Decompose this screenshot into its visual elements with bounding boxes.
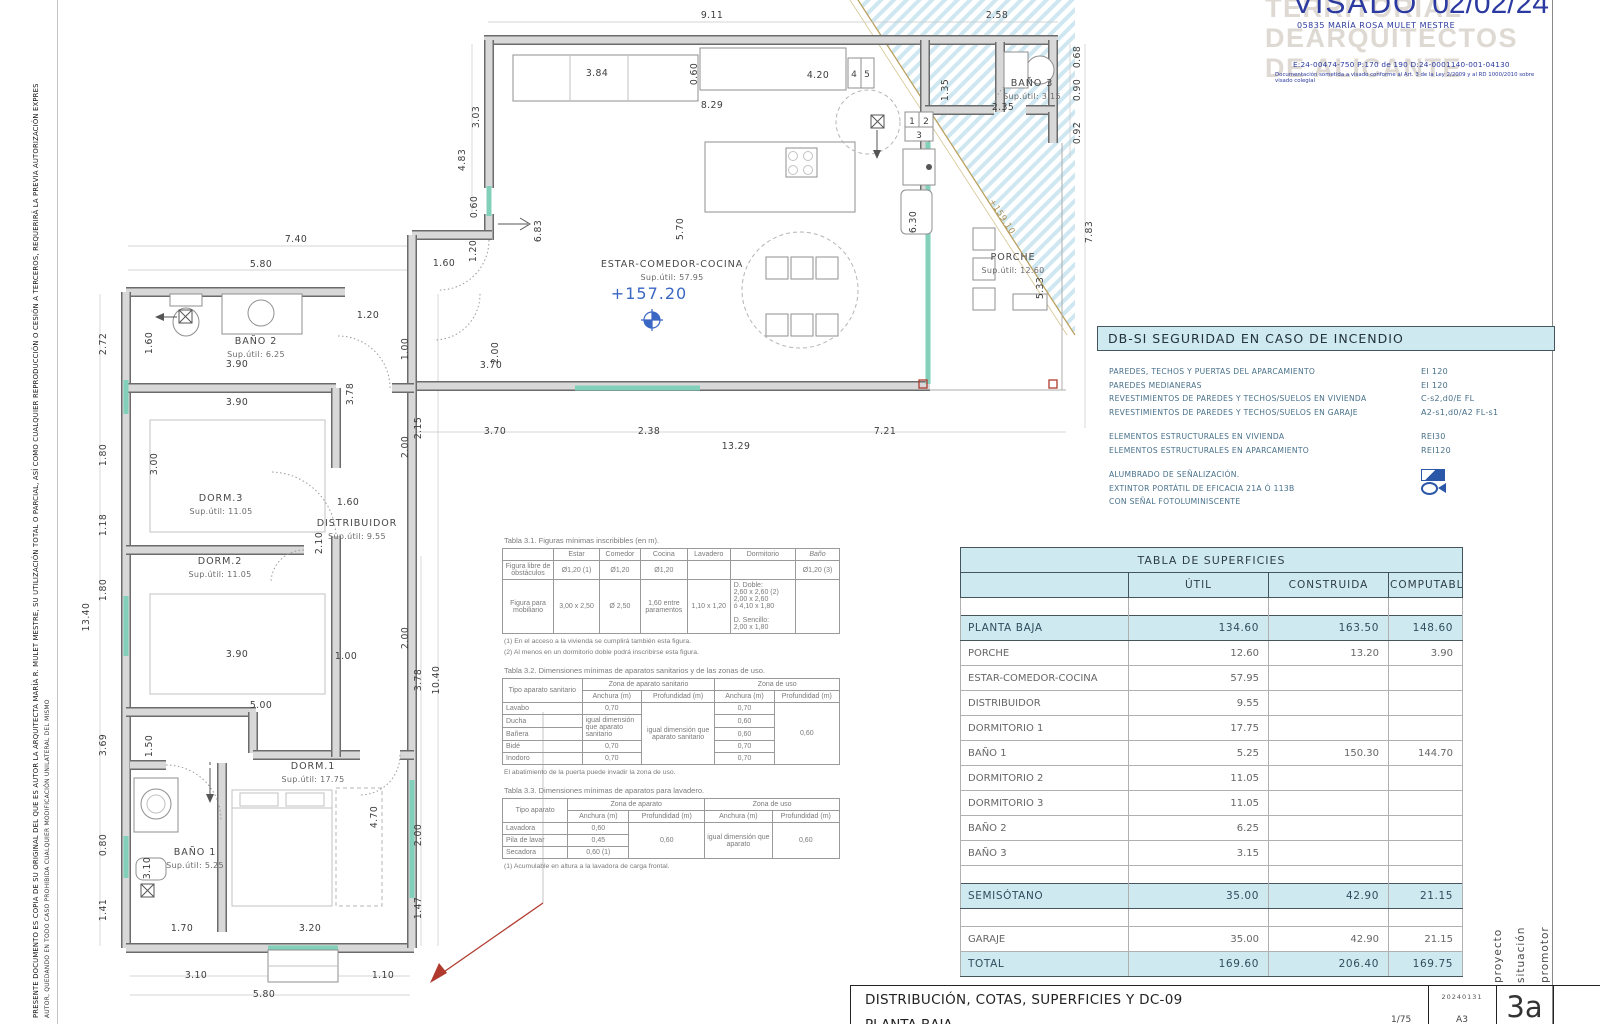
dbsi-row: REVESTIMIENTOS DE PAREDES Y TECHOS/SUELO… [1109, 392, 1555, 406]
dimension-label: 1.60 [144, 332, 155, 354]
dimension-label: 0.68 [1072, 46, 1083, 68]
dimension-label: 1.41 [98, 899, 109, 921]
surfaces-row: DISTRIBUIDOR9.55 [961, 691, 1463, 716]
bed [232, 790, 332, 906]
dbsi-row: ELEMENTOS ESTRUCTURALES EN VIVIENDAREI30 [1109, 430, 1555, 444]
t32-title: Tabla 3.2. Dimensiones mínimas de aparat… [504, 666, 840, 675]
stamp-title: VISADO [1293, 0, 1418, 21]
surfaces-row: DORMITORIO 311.05 [961, 791, 1463, 816]
surfaces-col-computable: COMPUTABLE [1389, 573, 1463, 598]
dimension-label: 1.60 [337, 497, 359, 508]
dbsi-value: C-s2,d0/E FL [1421, 394, 1474, 403]
surfaces-row: PORCHE12.6013.203.90 [961, 641, 1463, 666]
drain-icon [141, 884, 154, 897]
surfaces-row [961, 909, 1463, 927]
surfaces-col-construida: CONSTRUIDA [1269, 573, 1389, 598]
drain-icon [871, 115, 884, 159]
dimension-label: 3.10 [185, 970, 207, 981]
dimension-label: 3.84 [586, 68, 608, 79]
appliance-5: 5 [864, 70, 870, 80]
red-marker [1049, 380, 1057, 388]
surfaces-row: GARAJE35.0042.9021.15 [961, 927, 1463, 952]
entry-arrow-icon [498, 218, 530, 230]
room-area-label: Sup.útil: 17.75 [281, 775, 344, 784]
dimension-label: 5.80 [250, 259, 272, 270]
dimension-label: 0.60 [689, 63, 700, 85]
dbsi-value: EI 120 [1421, 381, 1448, 390]
margin-label-situacion: situación [1515, 903, 1527, 983]
dimension-label: 13.29 [722, 441, 751, 452]
dbsi-row: PAREDES MEDIANERASEI 120 [1109, 379, 1555, 393]
dbsi-label: REVESTIMIENTOS DE PAREDES Y TECHOS/SUELO… [1109, 408, 1421, 417]
dimension-label: 6.83 [533, 220, 544, 242]
dimension-label: 3.90 [226, 397, 248, 408]
stamp-refs: E:24-00474-750 P:170 de 190 D:24-0001140… [1293, 60, 1510, 69]
surfaces-row [961, 866, 1463, 884]
dimension-label: 3.78 [345, 383, 356, 405]
visado-stamp: TERRITORIAL DEARQUITECTOS DE ALICANTE VI… [1265, 0, 1557, 96]
wardrobe [336, 788, 382, 906]
surfaces-table: TABLA DE SUPERFICIES ÚTIL CONSTRUIDA COM… [960, 547, 1463, 977]
surfaces-row: BAÑO 15.25150.30144.70 [961, 741, 1463, 766]
dbsi-label: ALUMBRADO DE SEÑALIZACIÓN. [1109, 470, 1421, 479]
room-label: DORM.2 [198, 556, 242, 567]
appliance-1: 1 [909, 117, 915, 127]
surfaces-row: DORMITORIO 117.75 [961, 716, 1463, 741]
dimension-label: 2.38 [638, 426, 660, 437]
t32: Tipo aparato sanitario Zona de aparato s… [502, 678, 840, 765]
dimension-label: 2.10 [314, 532, 325, 554]
room-label: ESTAR-COMEDOR-COCINA [601, 259, 743, 270]
surfaces-row: SEMISÓTANO35.0042.9021.15 [961, 884, 1463, 909]
surfaces-row: DORMITORIO 211.05 [961, 766, 1463, 791]
dbsi-value: REI120 [1421, 446, 1451, 455]
dimension-label: 1.35 [940, 79, 951, 101]
dimension-label: 2.00 [413, 824, 424, 846]
appliance-3: 3 [916, 131, 922, 141]
t33-note: (1) Acumulable en altura a la lavadora d… [504, 863, 840, 870]
dbsi-label: ELEMENTOS ESTRUCTURALES EN APARCAMIENTO [1109, 446, 1421, 455]
dbsi-row: ALUMBRADO DE SEÑALIZACIÓN. [1109, 468, 1555, 482]
title-block: DISTRIBUCIÓN, COTAS, SUPERFICIES Y DC-09… [850, 985, 1600, 1024]
dimension-label: 1.60 [433, 258, 455, 269]
room-label: DISTRIBUIDOR [317, 518, 398, 529]
sheet-number: 3a [1496, 990, 1553, 1024]
surfaces-col-empty [961, 573, 1129, 598]
dimension-label: 3.20 [299, 923, 321, 934]
dimension-label: 2.58 [986, 10, 1008, 21]
t33: Tipo aparato Zona de aparato Zona de uso… [502, 798, 840, 859]
surfaces-table-title: TABLA DE SUPERFICIES [961, 548, 1463, 573]
dbsi-label: PAREDES MEDIANERAS [1109, 381, 1421, 390]
appliance-4: 4 [851, 70, 857, 80]
drawing-title: DISTRIBUCIÓN, COTAS, SUPERFICIES Y DC-09 [865, 992, 1183, 1008]
dimension-label: 5.33 [1035, 277, 1046, 299]
dimension-label: 13.40 [81, 603, 92, 632]
dbsi-value: EI 120 [1421, 367, 1448, 376]
dimension-label: 3.70 [484, 426, 506, 437]
surfaces-row: ESTAR-COMEDOR-COCINA57.95 [961, 666, 1463, 691]
dbsi-row: PAREDES, TECHOS Y PUERTAS DEL APARCAMIEN… [1109, 365, 1555, 379]
room-area-label: Sup.útil: 6.25 [227, 350, 285, 359]
dimension-label: 1.80 [98, 579, 109, 601]
dbsi-value: A2-s1,d0/A2 FL-s1 [1421, 408, 1498, 417]
dimension-label: 2.15 [413, 417, 424, 439]
dimension-label: 1.70 [171, 923, 193, 934]
dimension-label: 0.92 [1072, 122, 1083, 144]
paper-size: A3 [1449, 1015, 1475, 1024]
dbsi-label: REVESTIMIENTOS DE PAREDES Y TECHOS/SUELO… [1109, 394, 1421, 403]
dimension-label: 3.10 [142, 857, 153, 879]
dbsi-title: DB-SI SEGURIDAD EN CASO DE INCENDIO [1097, 326, 1555, 351]
dimension-label: 2.00 [400, 627, 411, 649]
dimension-label: 10.40 [431, 666, 442, 695]
dbsi-panel: DB-SI SEGURIDAD EN CASO DE INCENDIO PARE… [1097, 326, 1555, 520]
surfaces-row: BAÑO 33.15 [961, 841, 1463, 866]
dimension-label: 2.00 [400, 436, 411, 458]
margin-label-proyecto: proyecto [1492, 903, 1504, 983]
dimension-label: 3.69 [98, 734, 109, 756]
dbsi-row: REVESTIMIENTOS DE PAREDES Y TECHOS/SUELO… [1109, 406, 1555, 420]
surfaces-col-util: ÚTIL [1129, 573, 1269, 598]
dimension-label: 3.78 [413, 669, 424, 691]
dbsi-row: CON SEÑAL FOTOLUMINISCENTE [1109, 495, 1555, 509]
normative-tables: Tabla 3.1. Figuras mínimas inscribibles … [502, 536, 840, 870]
dimension-label: 7.83 [1084, 221, 1095, 243]
dbsi-label: EXTINTOR PORTÁTIL DE EFICACIA 21A Ó 113B [1109, 484, 1421, 493]
t31-note1: (1) En el acceso a la vivienda se cumpli… [504, 638, 840, 645]
dimension-label: 0.60 [469, 196, 480, 218]
t31-note2: (2) Al menos en un dormitorio doble podr… [504, 649, 840, 656]
dimension-label: 2.35 [992, 102, 1014, 113]
dimension-label: 7.21 [874, 426, 896, 437]
dimension-label: 5.70 [675, 218, 686, 240]
dimension-label: 4.83 [457, 149, 468, 171]
t33-title: Tabla 3.3. Dimensiones mínimas de aparat… [504, 786, 840, 795]
dimension-label: 3.70 [480, 360, 502, 371]
red-arrow [438, 903, 543, 976]
dimension-label: 1.18 [98, 514, 109, 536]
dimension-label: 1.00 [400, 338, 411, 360]
dimension-label: 4.70 [369, 806, 380, 828]
page-frame-left [57, 0, 58, 1024]
dimension-label: 7.40 [285, 234, 307, 245]
drawing-subtitle: PLANTA BAJA [865, 1017, 953, 1024]
room-area-label: Sup.útil: 57.95 [640, 273, 703, 282]
room-label: PORCHE [991, 252, 1036, 263]
dbsi-label: CON SEÑAL FOTOLUMINISCENTE [1109, 497, 1421, 506]
drawing-code: 20240131 [1431, 993, 1493, 1001]
level-mark: +157.20 [611, 284, 687, 331]
dimension-label: 1.47 [413, 897, 424, 919]
architectural-plan-sheet: { "margin": { "copyright_line1": "PRESEN… [0, 0, 1600, 1024]
copyright-vertical-text: PRESENTE DOCUMENTO ES COPIA DE SU ORIGIN… [32, 83, 40, 1018]
dimension-label: 1.80 [98, 444, 109, 466]
dbsi-label: ELEMENTOS ESTRUCTURALES EN VIVIENDA [1109, 432, 1421, 441]
room-area-label: Sup.útil: 9.55 [328, 532, 386, 541]
dimension-label: 1.20 [468, 240, 479, 262]
dimension-label: 8.29 [701, 100, 723, 111]
level-label: +157.20 [611, 284, 687, 303]
room-area-label: Sup.útil: 12.60 [981, 266, 1044, 275]
room-area-label: Sup.útil: 3.15 [1003, 92, 1061, 101]
surfaces-row: TOTAL169.60206.40169.75 [961, 952, 1463, 977]
signal-light-icon [1421, 469, 1445, 481]
stamp-collegiate: 05835 MARÍA ROSA MULET MESTRE [1297, 21, 1455, 30]
dimension-label: 9.11 [701, 10, 723, 21]
dimension-label: 1.50 [144, 735, 155, 757]
room-area-label: Sup.útil: 5.25 [166, 861, 224, 870]
dimension-label: 3.00 [149, 453, 160, 475]
t32-note: El abatimiento de la puerta puede invadi… [504, 769, 840, 776]
dimension-label: 5.80 [253, 989, 275, 1000]
room-label: DORM.3 [199, 493, 243, 504]
copyright-vertical-text-2: AUTOR, QUEDANDO EN TODO CASO PROHIBIDA C… [44, 699, 51, 1018]
stamp-date: 02/02/24 [1432, 0, 1549, 21]
room-area-label: Sup.útil: 11.05 [189, 507, 252, 516]
margin-label-promotor: promotor [1539, 903, 1551, 983]
dbsi-value: REI30 [1421, 432, 1446, 441]
dimension-label: 1.00 [335, 651, 357, 662]
stamp-legal: Documentación sometida a visado conforme… [1275, 72, 1551, 85]
room-label: BAÑO 1 [174, 845, 216, 858]
drawing-scale: 1/75 [1391, 1015, 1411, 1024]
t31: Estar Comedor Cocina Lavadero Dormitorio… [502, 548, 840, 634]
dbsi-row: ELEMENTOS ESTRUCTURALES EN APARCAMIENTOR… [1109, 444, 1555, 458]
appliance-2: 2 [923, 117, 929, 127]
dimension-label: 1.20 [357, 310, 379, 321]
room-label: DORM.1 [291, 761, 335, 772]
room-area-label: Sup.útil: 11.05 [188, 570, 251, 579]
dbsi-label: PAREDES, TECHOS Y PUERTAS DEL APARCAMIEN… [1109, 367, 1421, 376]
surfaces-row: BAÑO 26.25 [961, 816, 1463, 841]
dimension-label: 5.00 [250, 700, 272, 711]
dimension-label: 3.90 [226, 359, 248, 370]
dimension-label: 2.72 [98, 333, 109, 355]
room-label: BAÑO 2 [235, 334, 277, 347]
dimension-label: 6.30 [908, 211, 919, 233]
t31-title: Tabla 3.1. Figuras mínimas inscribibles … [504, 536, 840, 545]
dimension-label: 1.10 [372, 970, 394, 981]
surfaces-row: PLANTA BAJA134.60163.50148.60 [961, 616, 1463, 641]
shower-arrow-icon [206, 762, 214, 803]
dimension-label: 0.80 [98, 834, 109, 856]
extinguisher-icon [1421, 482, 1438, 495]
dimension-label: 4.20 [807, 70, 829, 81]
dimension-label: 3.90 [226, 649, 248, 660]
dbsi-row: EXTINTOR PORTÁTIL DE EFICACIA 21A Ó 113B [1109, 482, 1555, 496]
dimension-label: 0.90 [1072, 79, 1083, 101]
dimension-label: 3.03 [471, 106, 482, 128]
room-label: BAÑO 3 [1011, 76, 1053, 89]
